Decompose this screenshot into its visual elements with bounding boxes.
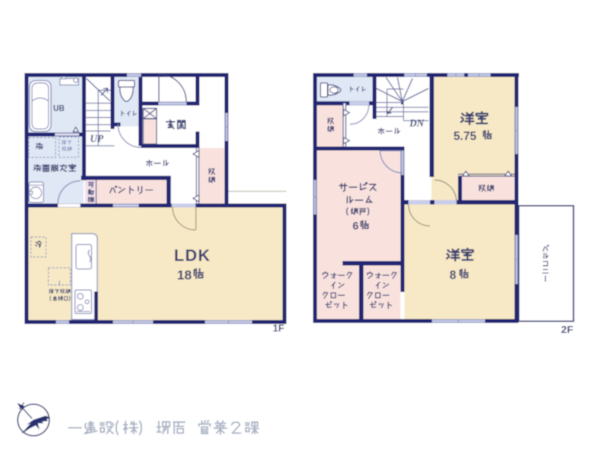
svg-text:6: 6 bbox=[353, 221, 359, 233]
svg-text:UB: UB bbox=[53, 104, 65, 113]
svg-text:LDK: LDK bbox=[174, 247, 211, 265]
svg-text:8: 8 bbox=[450, 268, 457, 282]
svg-text:DN: DN bbox=[409, 119, 425, 130]
svg-text:1F: 1F bbox=[273, 324, 284, 335]
svg-text:5.75: 5.75 bbox=[454, 129, 477, 143]
svg-text:UP: UP bbox=[90, 134, 104, 145]
svg-text:2F: 2F bbox=[561, 324, 574, 336]
svg-text:18: 18 bbox=[177, 268, 192, 283]
